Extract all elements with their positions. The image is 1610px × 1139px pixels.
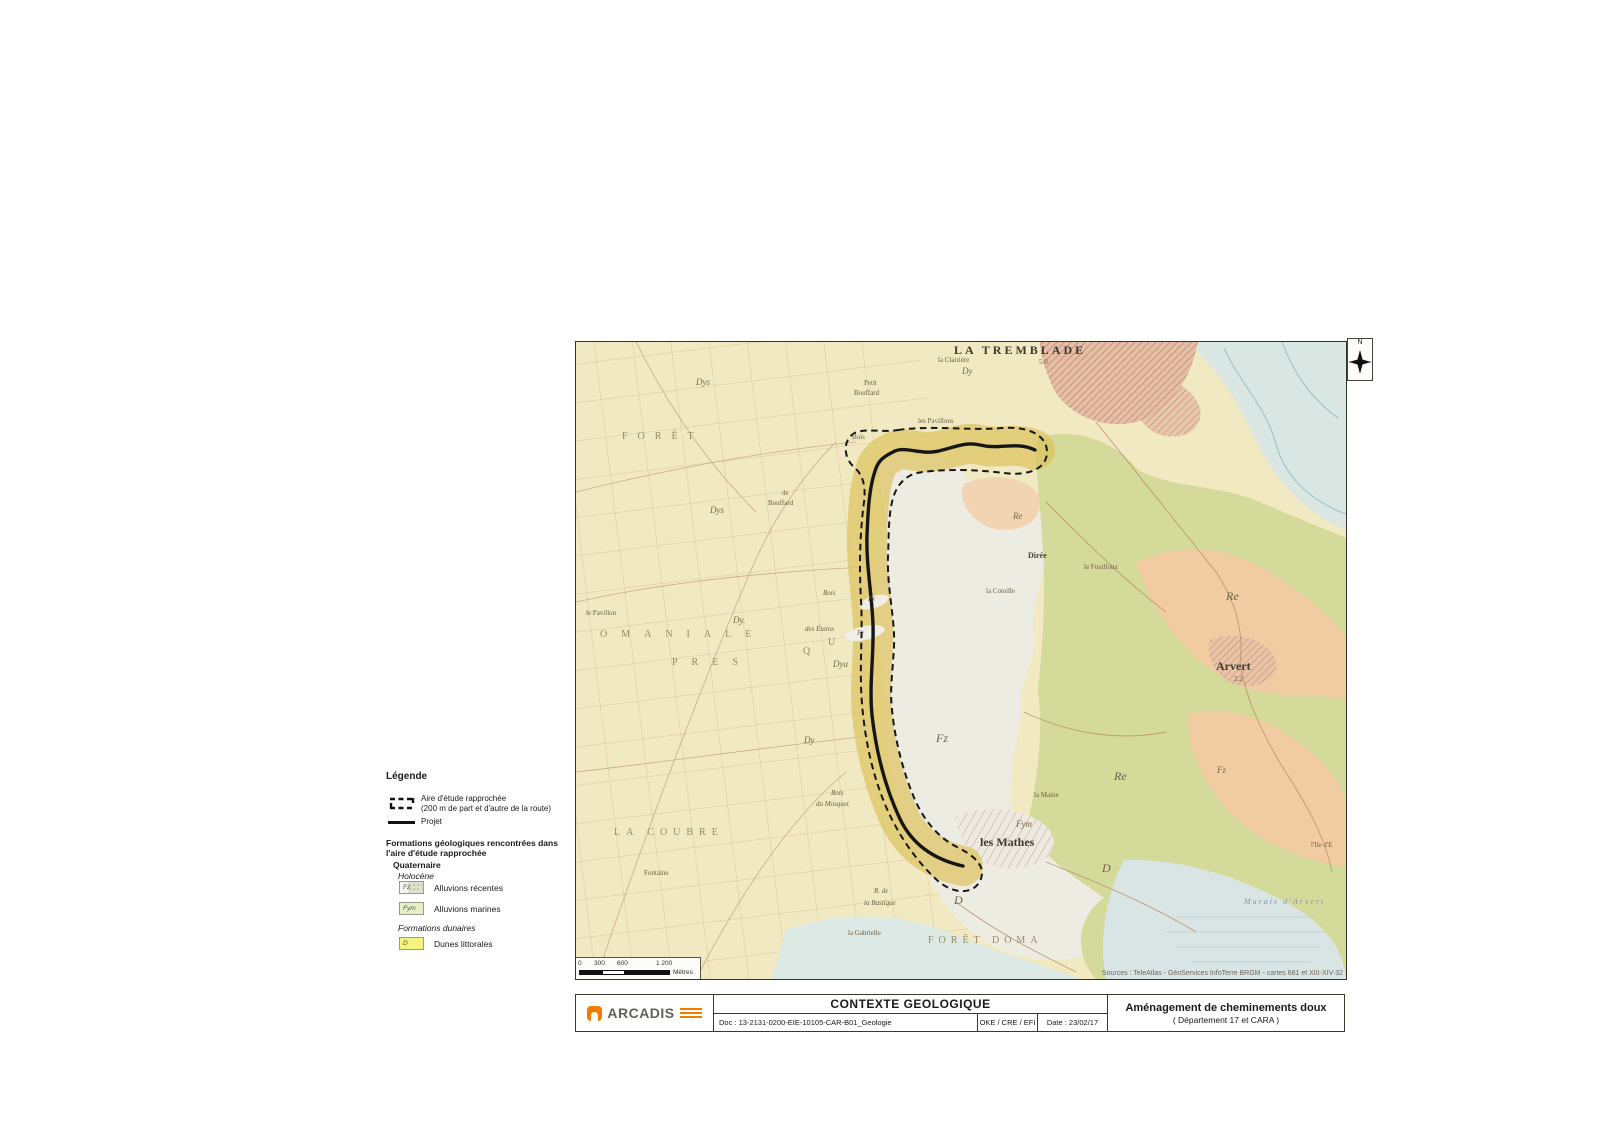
scalebar-segment — [625, 970, 670, 975]
swatch-code: Fym — [403, 905, 416, 912]
map-title: CONTEXTE GEOLOGIQUE — [714, 995, 1107, 1014]
titleblock-meta-row: Doc : 13-2131-0200-EIE-10105-CAR-B01_Geo… — [714, 1014, 1107, 1031]
scalebar-segment — [602, 970, 625, 975]
label-alluvions-marines: Alluvions marines — [434, 904, 501, 914]
label-alluvions-recentes: Alluvions récentes — [434, 883, 503, 893]
scalebar-unit: Mètres — [673, 969, 693, 976]
study-area-dash-symbol — [388, 795, 416, 812]
scalebar-segment — [579, 970, 602, 975]
map-panel: LA TREMBLADEla Clairière5.0DyDysPetitBou… — [575, 341, 1347, 980]
formations-heading-line2: l'aire d'étude rapprochée — [386, 848, 486, 858]
group-holocene: Holocène — [398, 871, 434, 881]
scalebar-tick: 300 — [594, 960, 605, 967]
swatch-alluvions-marines: Fym — [399, 902, 424, 915]
titleblock-middle: CONTEXTE GEOLOGIQUE Doc : 13-2131-0200-E… — [714, 995, 1108, 1031]
arcadis-logo: ARCADIS — [576, 995, 714, 1031]
project-label: Projet — [421, 817, 442, 826]
project-line-symbol — [388, 821, 415, 824]
scalebar-tick: 1 200 — [656, 960, 672, 967]
swatch-code: D — [403, 940, 408, 947]
group-formations-dunaires: Formations dunaires — [398, 923, 475, 933]
study-area-label-line1: Aire d'étude rapprochée — [421, 794, 506, 803]
arcadis-logo-text: ARCADIS — [607, 1005, 674, 1021]
north-label: N — [1357, 339, 1362, 346]
map-sources: Sources : TeleAtlas - GéoServices InfoTe… — [1102, 970, 1343, 977]
project-title: Aménagement de cheminements doux — [1125, 1002, 1326, 1014]
study-area-label-line2: (200 m de part et d'autre de la route) — [421, 804, 551, 813]
authors-initials: OKE / CRE / EFI — [978, 1014, 1038, 1031]
arcadis-logo-icon — [587, 1006, 602, 1021]
arcadis-tagline — [680, 1008, 702, 1018]
swatch-dunes-littorales: D — [399, 937, 424, 950]
scalebar: 0 300 600 1 200 Mètres — [576, 957, 701, 979]
north-compass: N — [1347, 338, 1373, 381]
scalebar-tick: 0 — [578, 960, 582, 967]
formations-heading-line1: Formations géologiques rencontrées dans — [386, 838, 558, 848]
swatch-alluvions-recentes: Fz — [399, 881, 424, 894]
legend-panel: Légende Aire d'étude rapprochée (200 m d… — [385, 766, 585, 966]
scalebar-tick: 600 — [617, 960, 628, 967]
titleblock: ARCADIS CONTEXTE GEOLOGIQUE Doc : 13-213… — [575, 994, 1345, 1032]
doc-reference: Doc : 13-2131-0200-EIE-10105-CAR-B01_Geo… — [714, 1014, 978, 1031]
project-subtitle: ( Département 17 et CARA ) — [1173, 1015, 1279, 1025]
group-quaternaire: Quaternaire — [393, 860, 441, 870]
titleblock-project: Aménagement de cheminements doux ( Dépar… — [1108, 995, 1344, 1031]
swatch-code: Fz — [403, 884, 410, 891]
label-dunes-littorales: Dunes littorales — [434, 939, 493, 949]
legend-title: Légende — [386, 771, 427, 782]
geological-map — [576, 342, 1346, 979]
date-field: Date : 23/02/17 — [1038, 1014, 1107, 1031]
